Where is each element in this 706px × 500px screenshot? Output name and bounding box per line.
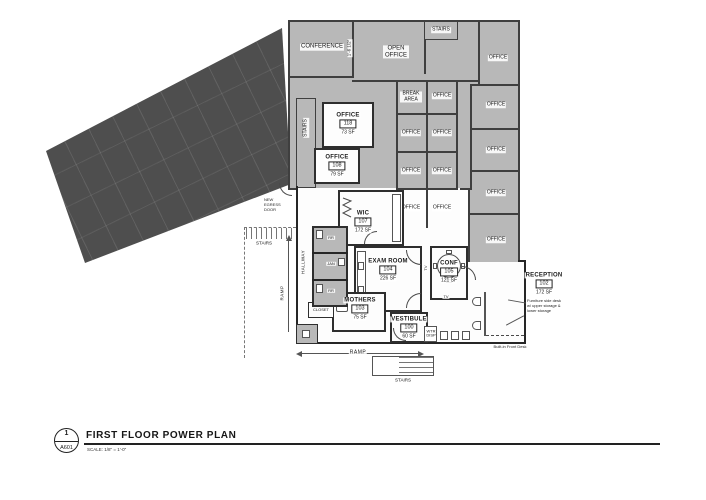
right-office-column-extension bbox=[468, 188, 520, 268]
sink-icon bbox=[358, 262, 364, 270]
wall bbox=[396, 151, 458, 153]
room-name: RECEPTION bbox=[525, 272, 564, 278]
tv-label: TV bbox=[442, 295, 449, 299]
room-area: 73 SF bbox=[341, 130, 354, 136]
wall bbox=[456, 80, 458, 190]
room-label-rr: RR bbox=[327, 236, 335, 240]
room-label-office: OFFICE bbox=[486, 147, 506, 153]
room-area: 60 SF bbox=[402, 334, 415, 340]
room-tag-mothers: MOTHERS 103 75 SF bbox=[343, 297, 376, 320]
room-name: MOTHERS bbox=[343, 297, 376, 303]
room-tag-vestibule: VESTIBULE 100 60 SF bbox=[390, 316, 427, 339]
room-area: 75 SF bbox=[353, 315, 366, 321]
wall bbox=[470, 170, 520, 172]
room-tag-exam: EXAM ROOM 104 226 SF bbox=[367, 258, 408, 281]
room-area: 172 SF bbox=[355, 228, 371, 234]
desk-chair-icon bbox=[472, 321, 481, 330]
bottom-stairs-label: STAIRS bbox=[395, 379, 411, 384]
room-number: 102 bbox=[535, 279, 552, 288]
dimension-label: 1'-6 1/2" bbox=[348, 39, 353, 57]
ramp-label-bottom: RAMP bbox=[349, 350, 367, 356]
wall bbox=[472, 84, 520, 86]
furniture-note: Furniture side desk w/ upper storage & l… bbox=[527, 298, 563, 313]
shelving-icon bbox=[392, 194, 401, 242]
room-label-office: OFFICE bbox=[486, 237, 506, 243]
scale-label: SCALE: 1/8" = 1'-0" bbox=[87, 447, 126, 452]
room-label-conference: CONFERENCE bbox=[300, 44, 344, 51]
bottom-stairs-outline bbox=[372, 356, 434, 376]
property-dashed-line bbox=[244, 227, 245, 358]
room-label-office: OFFICE bbox=[401, 168, 421, 174]
drawing-sheet: CONFERENCE 1'-6 1/2" OPEN OFFICE STAIRS … bbox=[0, 0, 706, 500]
room-name: VESTIBULE bbox=[390, 316, 427, 322]
water-dispenser-label: WTR DISP bbox=[425, 330, 437, 339]
wall bbox=[396, 80, 398, 190]
arrowhead-icon bbox=[296, 351, 302, 357]
stairwell-left-outline bbox=[296, 98, 316, 188]
room-label-office: OFFICE bbox=[432, 93, 452, 99]
room-tag-wic: WIC 107 172 SF bbox=[354, 210, 371, 233]
room-tag-office-118: OFFICE 118 73 SF bbox=[335, 112, 360, 135]
room-number: 104 bbox=[379, 265, 396, 274]
chair-icon bbox=[446, 250, 452, 254]
room-number: 107 bbox=[354, 217, 371, 226]
room-tag-conf: CONF 105 121 SF bbox=[439, 260, 459, 283]
wall bbox=[478, 20, 480, 86]
room-number: 105 bbox=[440, 267, 457, 276]
wall bbox=[296, 186, 298, 344]
front-desk-note: Built-in Front Desk bbox=[488, 344, 532, 349]
detail-bubble-divider bbox=[55, 441, 78, 442]
wall bbox=[518, 260, 526, 262]
room-label-office: OFFICE bbox=[432, 130, 452, 136]
room-label-office: OFFICE bbox=[432, 168, 452, 174]
chair-icon bbox=[462, 331, 470, 340]
room-tag-reception: RECEPTION 102 172 SF bbox=[525, 272, 564, 295]
chair-icon bbox=[451, 331, 459, 340]
wall bbox=[396, 113, 458, 115]
room-label-office: OFFICE bbox=[432, 205, 452, 211]
room-label-stairs-top: STAIRS bbox=[431, 27, 451, 33]
room-label-break-area: BREAK AREA bbox=[400, 92, 422, 103]
hallway-label: HALLWAY bbox=[302, 250, 307, 274]
room-name: WIC bbox=[356, 210, 370, 216]
room-label-office: OFFICE bbox=[486, 190, 506, 196]
room-label-jan: JAN bbox=[326, 262, 336, 266]
fixture-icon bbox=[302, 330, 310, 338]
room-label-closet: CLOSET bbox=[313, 308, 329, 312]
door-arc bbox=[279, 183, 292, 196]
arrowhead-icon bbox=[286, 235, 292, 241]
room-number: 100 bbox=[400, 323, 417, 332]
toilet-icon bbox=[316, 230, 323, 239]
desk-chair-icon bbox=[472, 297, 481, 306]
bottom-stairs-treads bbox=[399, 357, 433, 375]
drawing-title: FIRST FLOOR POWER PLAN bbox=[86, 430, 236, 441]
room-area: 172 SF bbox=[536, 290, 552, 296]
toilet-icon bbox=[316, 284, 323, 293]
wall bbox=[470, 84, 472, 190]
detail-number: 1 bbox=[55, 430, 78, 437]
wall bbox=[396, 188, 458, 190]
detail-bubble: 1 A601 bbox=[54, 428, 79, 453]
room-area: 121 SF bbox=[441, 278, 457, 284]
ramp-direction-line bbox=[288, 240, 289, 332]
wall bbox=[312, 279, 348, 281]
wall bbox=[470, 213, 520, 215]
sheet-number: A601 bbox=[55, 445, 78, 451]
room-name: CONF bbox=[439, 260, 459, 266]
room-name: OFFICE bbox=[335, 112, 360, 118]
room-name: OFFICE bbox=[324, 154, 349, 160]
wall bbox=[470, 128, 520, 130]
mop-sink-icon bbox=[338, 258, 345, 266]
room-name: EXAM ROOM bbox=[367, 258, 408, 264]
room-label-office: OFFICE bbox=[486, 102, 506, 108]
room-label-open-office: OPEN OFFICE bbox=[383, 45, 409, 58]
room-number: 108 bbox=[328, 161, 345, 170]
room-label-office: OFFICE bbox=[488, 55, 508, 61]
room-number: 118 bbox=[340, 119, 357, 128]
wall bbox=[312, 252, 348, 254]
reception-desk-line bbox=[484, 292, 486, 336]
chair-icon bbox=[433, 263, 437, 269]
clothes-rack-icon bbox=[340, 196, 354, 220]
wall bbox=[352, 80, 478, 82]
exterior-stairs-label: STAIRS bbox=[255, 242, 273, 247]
room-area: 226 SF bbox=[380, 276, 396, 282]
room-label-stairs-left: STAIRS bbox=[303, 118, 309, 138]
wall bbox=[426, 80, 428, 228]
room-tag-office-108: OFFICE 108 79 SF bbox=[324, 154, 349, 177]
room-label-office: OFFICE bbox=[401, 130, 421, 136]
room-label-rr: RR bbox=[327, 289, 335, 293]
wall bbox=[288, 76, 354, 78]
room-number: 103 bbox=[351, 304, 368, 313]
front-desk-dashed-outline bbox=[486, 335, 524, 336]
ramp-label-vertical: RAMP bbox=[281, 284, 286, 301]
new-egress-door-note: NEW EGRESS DOOR bbox=[264, 197, 288, 212]
title-underline bbox=[84, 443, 660, 445]
room-area: 79 SF bbox=[330, 172, 343, 178]
chair-icon bbox=[440, 331, 448, 340]
tv-label: TV bbox=[424, 264, 428, 271]
wall bbox=[424, 40, 426, 74]
